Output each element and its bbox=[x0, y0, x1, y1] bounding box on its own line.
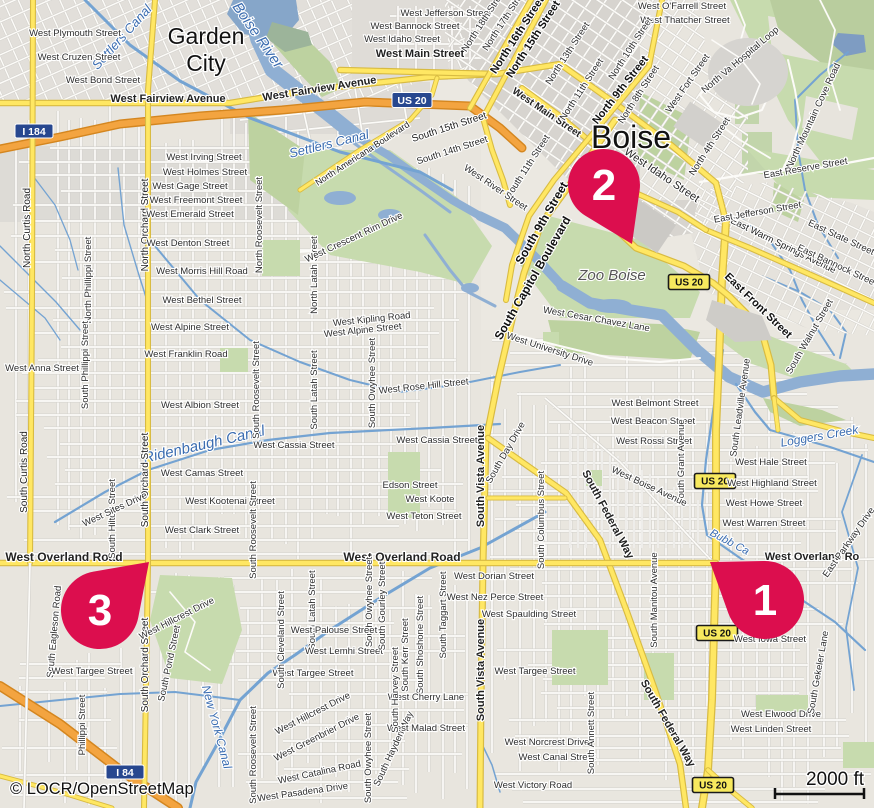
svg-text:West Gage Street: West Gage Street bbox=[152, 181, 228, 192]
svg-text:2: 2 bbox=[592, 161, 616, 210]
svg-text:South Kerr Street: South Kerr Street bbox=[400, 618, 411, 692]
svg-text:West Teton Street: West Teton Street bbox=[386, 511, 462, 522]
svg-text:West Denton Street: West Denton Street bbox=[147, 238, 230, 249]
svg-text:North Curtis Road: North Curtis Road bbox=[22, 188, 33, 268]
svg-text:West Idaho Street: West Idaho Street bbox=[364, 34, 440, 45]
svg-text:West Alpine Street: West Alpine Street bbox=[151, 322, 229, 333]
svg-text:West Victory Road: West Victory Road bbox=[494, 780, 572, 791]
svg-text:Edson Street: Edson Street bbox=[383, 480, 438, 491]
svg-text:West Freemont Street: West Freemont Street bbox=[150, 195, 243, 206]
svg-text:South Hilton Street: South Hilton Street bbox=[107, 479, 118, 559]
svg-text:South Taggart Street: South Taggart Street bbox=[438, 571, 449, 658]
svg-text:South Roosevelt Street: South Roosevelt Street bbox=[248, 481, 259, 579]
svg-text:West Bond Street: West Bond Street bbox=[66, 75, 141, 86]
svg-text:West Koote: West Koote bbox=[406, 494, 455, 505]
svg-text:North Roosevelt Street: North Roosevelt Street bbox=[254, 177, 265, 273]
svg-text:West Albion Street: West Albion Street bbox=[161, 400, 239, 411]
svg-text:West Main Street: West Main Street bbox=[376, 48, 465, 60]
svg-text:City: City bbox=[186, 50, 226, 76]
svg-text:South Manitou Avenue: South Manitou Avenue bbox=[649, 552, 660, 647]
svg-text:West Overland Road: West Overland Road bbox=[5, 550, 122, 564]
svg-text:West O'Farrell Street: West O'Farrell Street bbox=[638, 1, 727, 12]
svg-text:West Fairview Avenue: West Fairview Avenue bbox=[110, 93, 225, 105]
svg-text:South Owyhee Street: South Owyhee Street bbox=[363, 712, 374, 803]
svg-text:3: 3 bbox=[88, 586, 112, 635]
svg-text:1: 1 bbox=[753, 576, 777, 625]
svg-text:West Hale Street: West Hale Street bbox=[735, 457, 807, 468]
svg-text:US 20: US 20 bbox=[675, 278, 703, 289]
svg-text:South Roosevelt Street: South Roosevelt Street bbox=[248, 706, 259, 804]
svg-text:West Holmes Street: West Holmes Street bbox=[163, 167, 248, 178]
svg-text:West Lemhi Street: West Lemhi Street bbox=[305, 646, 383, 657]
svg-text:2000 ft: 2000 ft bbox=[806, 769, 865, 790]
svg-text:US 20: US 20 bbox=[699, 781, 727, 792]
svg-text:West Warren Street: West Warren Street bbox=[723, 518, 806, 529]
svg-text:West Bethel Street: West Bethel Street bbox=[162, 295, 241, 306]
svg-text:West Irving Street: West Irving Street bbox=[166, 152, 242, 163]
svg-text:South Shoshone Street: South Shoshone Street bbox=[415, 596, 426, 695]
svg-text:South Curtis Road: South Curtis Road bbox=[19, 431, 30, 513]
svg-text:South Latah Street: South Latah Street bbox=[307, 570, 318, 650]
svg-text:I 84: I 84 bbox=[116, 767, 134, 779]
svg-text:West Jefferson Street: West Jefferson Street bbox=[401, 8, 492, 19]
svg-text:South Orchard Street: South Orchard Street bbox=[140, 433, 151, 528]
svg-text:West Cassia Street: West Cassia Street bbox=[396, 435, 477, 446]
svg-text:© LOCR/OpenStreetMap: © LOCR/OpenStreetMap bbox=[10, 780, 194, 798]
svg-text:West Morris Hill Road: West Morris Hill Road bbox=[156, 266, 248, 277]
svg-text:West Howe Street: West Howe Street bbox=[726, 498, 803, 509]
svg-text:West Emerald Street: West Emerald Street bbox=[146, 209, 234, 220]
svg-text:South Roosevelt Street: South Roosevelt Street bbox=[251, 341, 262, 439]
svg-text:West Belmont Street: West Belmont Street bbox=[612, 398, 699, 409]
svg-text:South Latah Street: South Latah Street bbox=[309, 350, 320, 430]
svg-text:West Plymouth Street: West Plymouth Street bbox=[29, 28, 121, 39]
svg-text:Zoo Boise: Zoo Boise bbox=[577, 267, 646, 284]
svg-text:West Highland Street: West Highland Street bbox=[727, 478, 817, 489]
svg-text:West Norcrest Drive: West Norcrest Drive bbox=[505, 737, 590, 748]
svg-text:West Targee Street: West Targee Street bbox=[52, 666, 133, 677]
svg-text:West Dorian Street: West Dorian Street bbox=[454, 571, 534, 582]
svg-text:South Grant Avenue: South Grant Avenue bbox=[676, 419, 687, 504]
svg-text:West Franklin Road: West Franklin Road bbox=[144, 349, 227, 360]
svg-text:West Anna Street: West Anna Street bbox=[5, 363, 79, 374]
svg-text:South Cleveland Street: South Cleveland Street bbox=[276, 591, 287, 689]
svg-text:West Targee Street: West Targee Street bbox=[495, 666, 576, 677]
svg-text:US 20: US 20 bbox=[397, 95, 426, 107]
svg-text:West Kootenai Street: West Kootenai Street bbox=[185, 496, 275, 507]
svg-text:West Spaulding Street: West Spaulding Street bbox=[482, 609, 577, 620]
svg-text:North Orchard Street: North Orchard Street bbox=[140, 178, 151, 271]
svg-text:West Cassia Street: West Cassia Street bbox=[253, 440, 334, 451]
svg-text:West Overland Road: West Overland Road bbox=[343, 550, 460, 564]
svg-text:Garden: Garden bbox=[168, 23, 245, 49]
svg-text:South Gourley Street: South Gourley Street bbox=[377, 561, 388, 650]
svg-text:West Canal Street: West Canal Street bbox=[519, 752, 596, 763]
svg-text:West Cruzen Street: West Cruzen Street bbox=[38, 52, 121, 63]
svg-text:South Harvey Street: South Harvey Street bbox=[390, 647, 401, 733]
svg-text:North Phillippi Street: North Phillippi Street bbox=[83, 236, 94, 323]
svg-text:South Annett Street: South Annett Street bbox=[586, 691, 597, 774]
svg-text:South Vista Avenue: South Vista Avenue bbox=[475, 619, 487, 721]
svg-text:US 20: US 20 bbox=[703, 629, 731, 640]
svg-text:West Palouse Street: West Palouse Street bbox=[291, 625, 378, 636]
svg-text:West Nez Perce Street: West Nez Perce Street bbox=[447, 592, 544, 603]
svg-text:West Camas Street: West Camas Street bbox=[161, 468, 244, 479]
svg-text:South Owyhee Street: South Owyhee Street bbox=[367, 337, 378, 428]
svg-text:US 20: US 20 bbox=[701, 477, 729, 488]
svg-text:Phillippi Street: Phillippi Street bbox=[77, 694, 88, 755]
svg-text:West Clark Street: West Clark Street bbox=[165, 525, 240, 536]
svg-text:West Bannock Street: West Bannock Street bbox=[370, 21, 459, 32]
svg-text:South Columbus Street: South Columbus Street bbox=[536, 471, 547, 570]
svg-text:West Linden Street: West Linden Street bbox=[731, 724, 812, 735]
svg-text:South Phillippi Street: South Phillippi Street bbox=[80, 321, 91, 410]
svg-text:I 184: I 184 bbox=[22, 126, 46, 138]
